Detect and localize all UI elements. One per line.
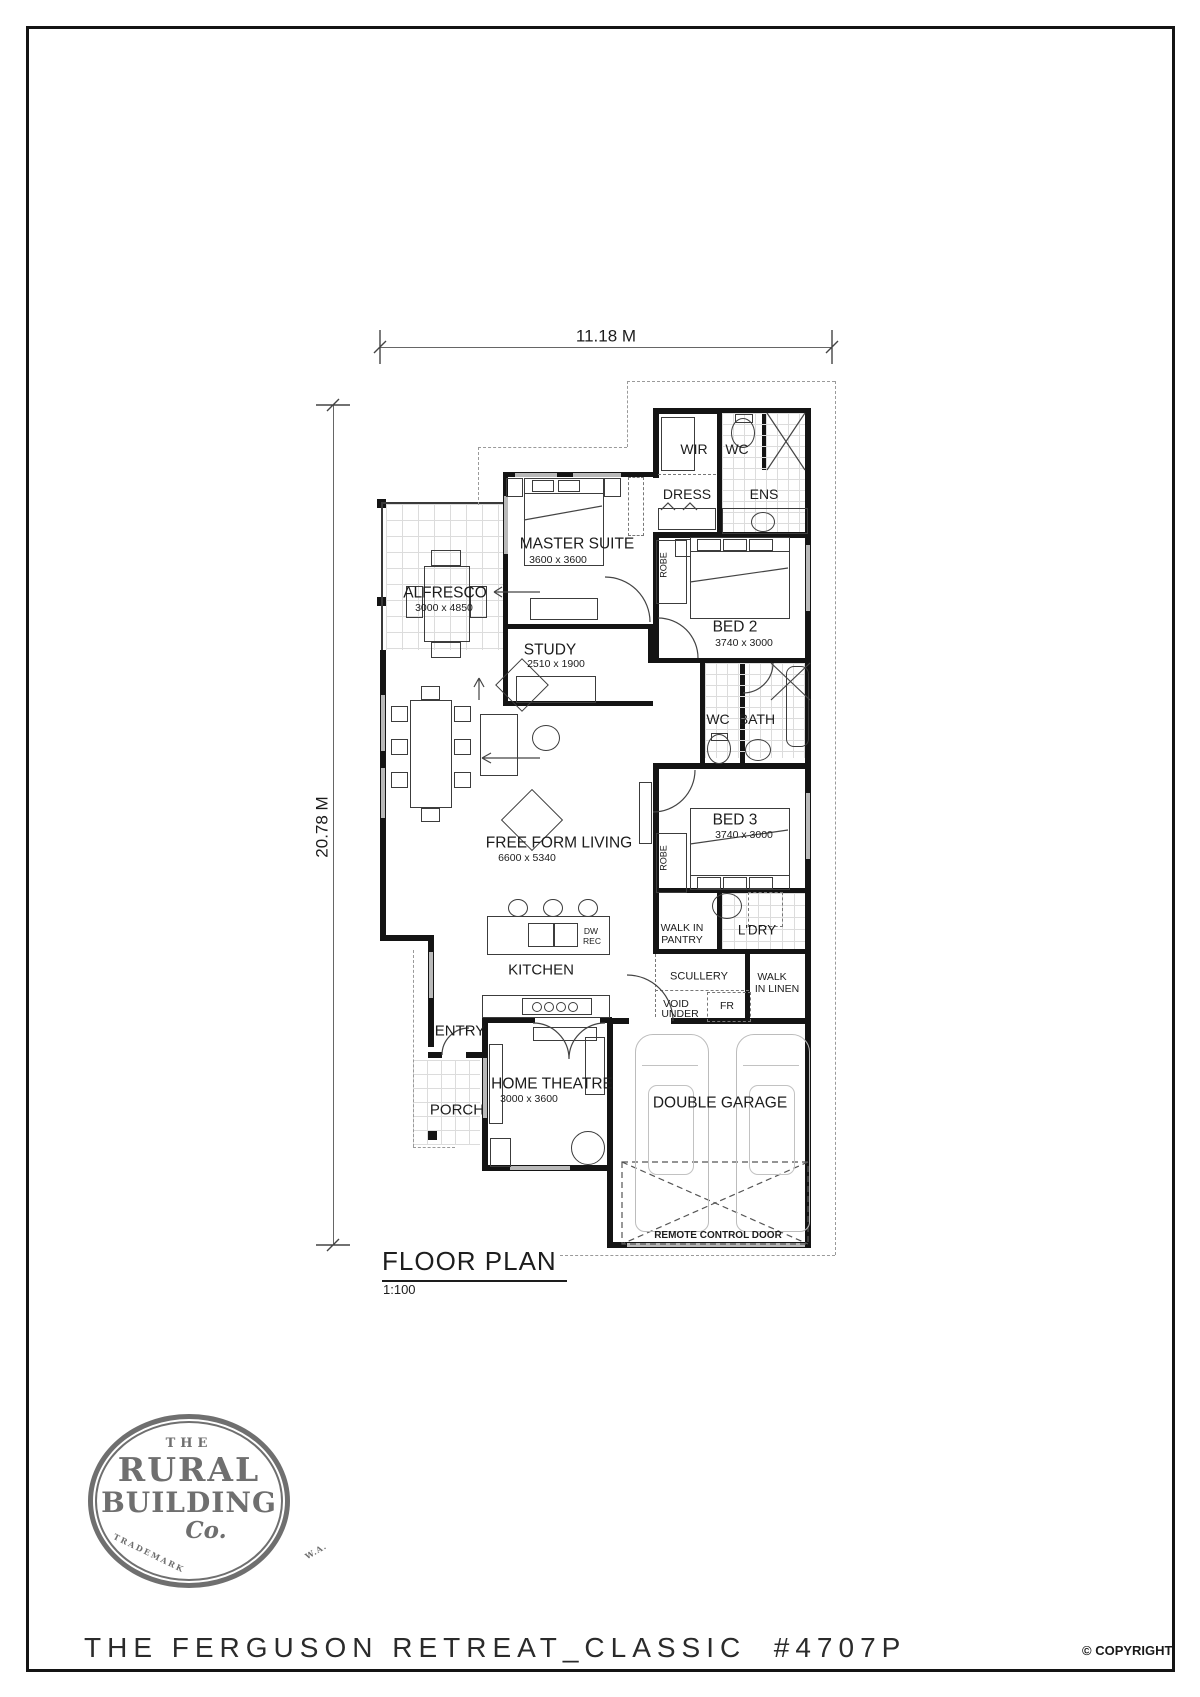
stool <box>543 899 563 917</box>
site-boundary <box>627 381 835 382</box>
laundry-sink <box>712 893 742 919</box>
round-rug <box>532 725 560 751</box>
chair <box>421 808 440 822</box>
logo-word-rural: RURAL <box>88 1453 290 1486</box>
label-rooms-study-name: STUDY <box>524 642 577 658</box>
chair <box>391 772 408 788</box>
alfresco-edge <box>381 502 503 504</box>
sink <box>554 923 578 947</box>
pillow <box>723 877 747 889</box>
label-rooms-living-name: FREE FORM LIVING <box>486 835 632 851</box>
chair <box>391 706 408 722</box>
site-boundary <box>627 381 628 447</box>
plan-scale: 1:100 <box>383 1282 416 1297</box>
wall <box>653 763 811 769</box>
pillow <box>749 877 773 889</box>
top-dimension-line <box>380 347 832 348</box>
wall <box>653 949 811 954</box>
logo-word-co: Co. <box>122 1519 290 1542</box>
wall <box>466 1052 482 1058</box>
label-rooms-theatre-name: HOME THEATRE <box>491 1076 613 1092</box>
label-rooms-wc2: WC <box>706 712 729 726</box>
window <box>806 545 810 611</box>
beanbag <box>571 1131 605 1165</box>
stool <box>508 899 528 917</box>
basin <box>751 512 775 532</box>
label-rooms-garage: DOUBLE GARAGE <box>653 1095 787 1111</box>
label-rooms-island_note_l2: REC <box>583 937 601 946</box>
label-rooms-wir: WIR <box>680 442 707 456</box>
label-rooms-linen_l2: IN LINEN <box>755 984 799 995</box>
label-rooms-bed3-size: 3740 x 3000 <box>715 830 773 841</box>
dashed-opening <box>655 954 656 1017</box>
label-rooms-theatre-size: 3000 x 3600 <box>500 1094 558 1105</box>
label-rooms-scullery: SCULLERY <box>670 972 728 983</box>
label-rooms-remote_door: REMOTE CONTROL DOOR <box>654 1231 782 1241</box>
site-boundary <box>835 381 836 1255</box>
label-rooms-fridge: FR <box>720 1001 734 1012</box>
chair <box>421 686 440 700</box>
label-rooms-bed2-name: BED 2 <box>713 619 758 635</box>
stool <box>578 899 598 917</box>
chair <box>454 772 471 788</box>
window <box>510 1166 570 1170</box>
dress-bench <box>658 508 716 530</box>
wall <box>380 935 434 941</box>
car-hood-line <box>642 1065 698 1066</box>
chair <box>391 739 408 755</box>
label-rooms-ens: ENS <box>750 487 779 501</box>
label-rooms-robe2: ROBE <box>660 845 669 871</box>
chair <box>431 642 461 658</box>
side-table <box>604 478 621 497</box>
label-rooms-ldry: L'DRY <box>738 923 776 937</box>
window <box>381 695 385 751</box>
hall-cupboard <box>639 782 652 844</box>
wall <box>607 1018 613 1248</box>
label-rooms-study-size: 2510 x 1900 <box>527 659 585 670</box>
label-rooms-entry: ENTRY <box>435 1024 486 1039</box>
label-rooms-island_note_l1: DW <box>584 927 598 936</box>
label-rooms-alfresco-size: 3000 x 4850 <box>415 603 473 614</box>
label-rooms-dress: DRESS <box>663 487 711 501</box>
wall <box>503 624 653 629</box>
site-boundary <box>560 1255 835 1256</box>
copyright-notice: © COPYRIGHT <box>1082 1643 1172 1658</box>
logo-word-the: THE <box>88 1436 290 1451</box>
chair <box>431 550 461 566</box>
label-rooms-bed2-size: 3740 x 3000 <box>715 638 773 649</box>
burner <box>544 1002 554 1012</box>
window <box>504 496 508 554</box>
label-rooms-pantry_l2: PANTRY <box>661 935 703 946</box>
window <box>515 473 557 477</box>
pillow <box>723 539 747 551</box>
label-rooms-porch: PORCH <box>430 1103 484 1118</box>
wall <box>653 893 659 954</box>
logo-wordmark: THE RURAL BUILDING Co. <box>88 1414 290 1588</box>
burner <box>532 1002 542 1012</box>
wall <box>648 624 653 663</box>
site-boundary <box>478 447 479 505</box>
basin <box>745 739 771 761</box>
window <box>573 473 621 477</box>
alfresco-edge <box>381 502 383 650</box>
burner <box>556 1002 566 1012</box>
label-rooms-bed3-name: BED 3 <box>713 812 758 828</box>
wall <box>653 408 659 478</box>
sliding-robe <box>628 477 644 536</box>
chair <box>454 739 471 755</box>
chair <box>454 706 471 722</box>
car-outline-1 <box>635 1034 709 1232</box>
window <box>627 1243 805 1247</box>
wall <box>428 1052 442 1058</box>
site-boundary <box>413 950 414 1147</box>
sink <box>528 923 554 947</box>
footer-title: THE FERGUSON RETREAT_CLASSIC #4707P <box>84 1632 906 1664</box>
label-dimensions-height: 20.78 M <box>314 796 331 857</box>
label-rooms-linen_l1: WALK <box>757 972 786 983</box>
pillow <box>697 877 721 889</box>
label-rooms-master-name: MASTER SUITE <box>520 536 635 552</box>
burner <box>568 1002 578 1012</box>
label-rooms-living-size: 6600 x 5340 <box>498 853 556 864</box>
side-table <box>506 478 523 497</box>
toilet <box>707 734 731 764</box>
tv-unit <box>530 598 598 620</box>
sofa <box>480 714 518 776</box>
label-rooms-bath: BATH <box>739 712 775 726</box>
pillow <box>532 480 554 492</box>
label-rooms-wc1: WC <box>725 442 748 456</box>
label-dimensions-width: 11.18 M <box>576 328 636 345</box>
site-boundary <box>413 1147 455 1148</box>
pillow <box>558 480 580 492</box>
plan-title: FLOOR PLAN <box>382 1246 567 1282</box>
pillow <box>749 539 773 551</box>
label-rooms-alfresco-name: ALFRESCO <box>403 585 487 601</box>
logo: THE RURAL BUILDING Co. TRADEMARK W.A. <box>88 1414 290 1588</box>
window <box>381 768 385 818</box>
dining-table <box>410 700 452 808</box>
page: FLOOR PLAN 1:100 11.18 M20.78 MWIRWCDRES… <box>0 0 1200 1697</box>
dashed-opening <box>655 990 749 991</box>
window <box>806 793 810 859</box>
label-rooms-master-size: 3600 x 3600 <box>529 555 587 566</box>
bathtub <box>786 666 809 747</box>
label-rooms-void_l2: UNDER <box>661 1009 698 1020</box>
speaker <box>490 1138 511 1167</box>
pillow <box>697 539 721 551</box>
window <box>429 952 433 998</box>
logo-word-building: BUILDING <box>88 1489 290 1517</box>
car-hood-line <box>743 1065 799 1066</box>
left-dimension-line <box>333 405 334 1245</box>
label-rooms-kitchen: KITCHEN <box>508 963 574 978</box>
site-boundary <box>478 447 627 448</box>
label-rooms-robe1: ROBE <box>660 552 669 578</box>
dashed-opening <box>658 474 716 475</box>
label-rooms-pantry_l1: WALK IN <box>661 923 704 934</box>
car-outline-2 <box>736 1034 810 1232</box>
